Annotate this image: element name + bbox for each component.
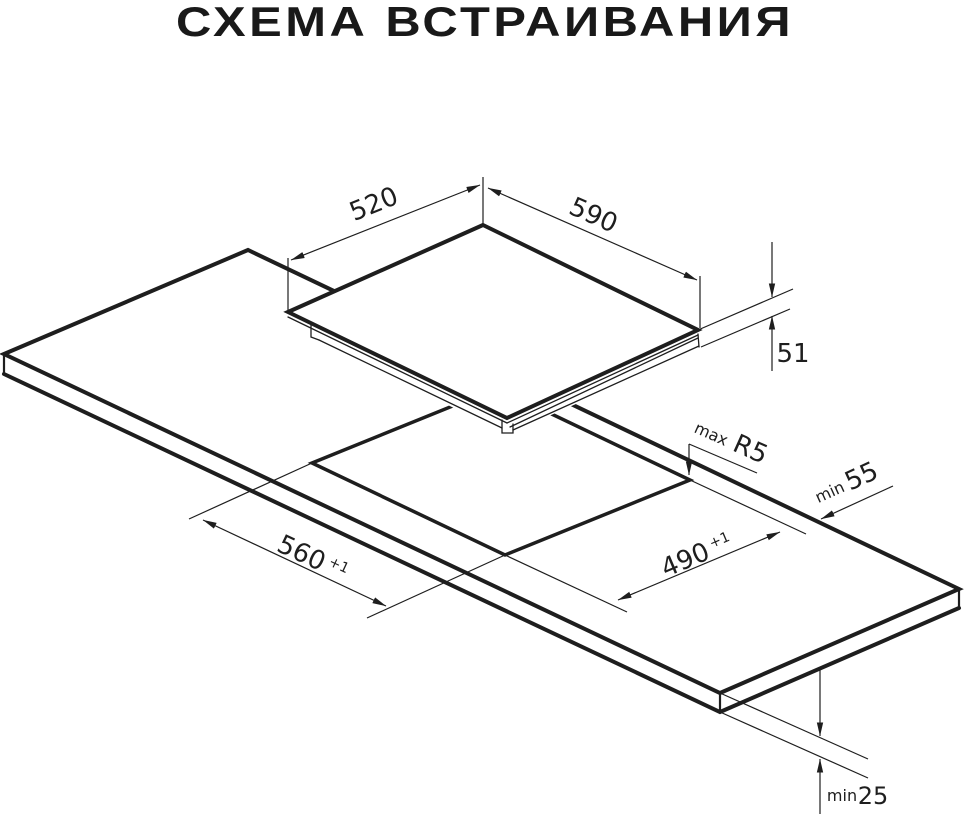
dimension-label-520: 520: [345, 181, 402, 227]
dimension-prefix-min: min: [812, 477, 847, 507]
dimension-label-590: 590: [564, 192, 622, 240]
extension-line: [720, 693, 868, 759]
dimension-value: 560: [272, 529, 330, 577]
dimension-label-25: 25: [858, 782, 889, 810]
dimension-hob-height: 51: [698, 242, 810, 371]
extension-line: [720, 712, 868, 778]
dimension-label-51: 51: [776, 339, 809, 369]
dimension-prefix-max: max: [691, 418, 731, 450]
dimension-label-560: 560+1: [272, 529, 352, 588]
extension-line: [698, 289, 793, 330]
installation-diagram: СХЕМА ВСТРАИВАНИЯ: [0, 0, 970, 814]
page-title: СХЕМА ВСТРАИВАНИЯ: [176, 0, 794, 45]
dimension-tolerance: +1: [326, 554, 351, 577]
installation-diagram-page: СХЕМА ВСТРАИВАНИЯ: [0, 0, 970, 814]
dimension-label-55: 55: [840, 456, 883, 497]
dimension-prefix-min: min: [827, 786, 857, 805]
